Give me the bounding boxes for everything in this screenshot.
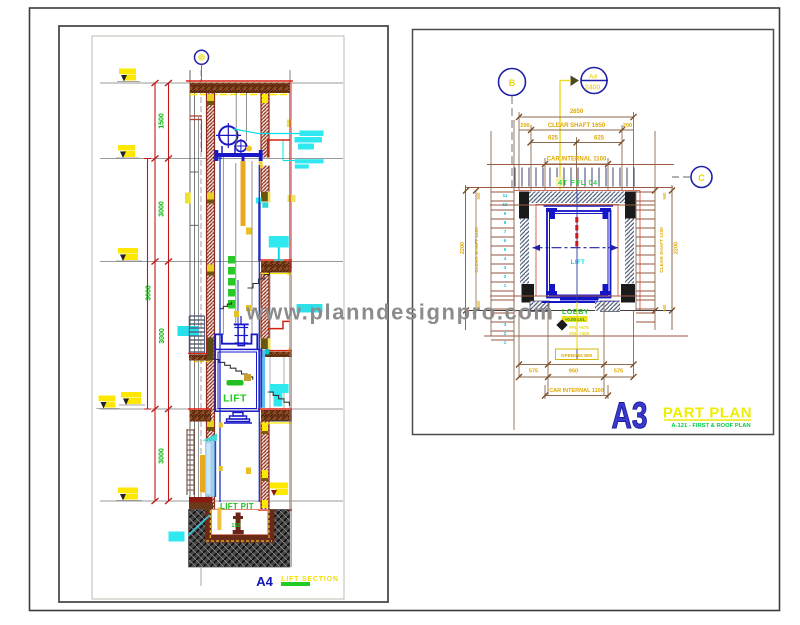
svg-text:CAR INTERNAL 1100: CAR INTERNAL 1100 [547,157,607,163]
svg-text:500: 500 [662,304,667,312]
svg-text:500: 500 [662,192,667,200]
svg-text:LOBBY: LOBBY [562,309,589,316]
svg-text:11: 11 [503,193,508,198]
svg-text:2650: 2650 [570,109,584,115]
svg-text:200: 200 [520,123,529,129]
svg-text:C: C [698,173,705,183]
svg-text:B: B [509,78,516,88]
svg-text:LIFT PIT: LIFT PIT [220,502,254,511]
svg-text:LIFT: LIFT [571,260,586,266]
svg-text:950: 950 [569,369,578,375]
svg-text:A4: A4 [589,74,598,81]
svg-text:OPENING 800: OPENING 800 [561,353,593,359]
svg-text:CLEAR SHAFT 1100: CLEAR SHAFT 1100 [659,227,665,273]
svg-text:www.planndesignpro.com: www.planndesignpro.com [245,300,554,325]
svg-text:CLEAR SHAFT 1650: CLEAR SHAFT 1650 [548,123,606,129]
svg-text:+0.00 LVL: +0.00 LVL [565,317,586,322]
svg-text:4T FFL 04: 4T FFL 04 [558,180,598,187]
svg-text:FFL +575: FFL +575 [569,325,589,330]
svg-text:PART PLAN: PART PLAN [663,405,752,422]
svg-text:LIFT SECTION: LIFT SECTION [281,576,338,583]
svg-text:575: 575 [529,369,538,375]
svg-text:10: 10 [502,202,508,207]
svg-text:200: 200 [623,123,632,129]
svg-text:3000: 3000 [146,285,153,301]
svg-text:625: 625 [548,136,559,142]
svg-text:2200: 2200 [674,242,680,254]
svg-text:LIFT: LIFT [223,393,247,405]
svg-text:CAR INTERNAL 1100: CAR INTERNAL 1100 [549,388,604,394]
svg-text:A-121 - FIRST & ROOF PLAN: A-121 - FIRST & ROOF PLAN [671,423,750,429]
svg-text:A4: A4 [256,574,273,589]
svg-text:3000: 3000 [159,328,166,344]
svg-text:625: 625 [594,136,605,142]
svg-text:2200: 2200 [460,242,466,254]
svg-text:575: 575 [614,369,623,375]
svg-text:3000: 3000 [159,201,166,217]
svg-text:1500: 1500 [159,113,166,129]
svg-text:500: 500 [476,192,481,200]
svg-text:3000: 3000 [159,448,166,464]
svg-text:CLEAR SHAFT 1100: CLEAR SHAFT 1100 [474,227,480,273]
svg-text:150: 150 [231,523,240,529]
svg-text:SSL +425: SSL +425 [569,331,590,336]
svg-text:2400: 2400 [585,85,601,92]
svg-text:A3: A3 [612,395,648,436]
